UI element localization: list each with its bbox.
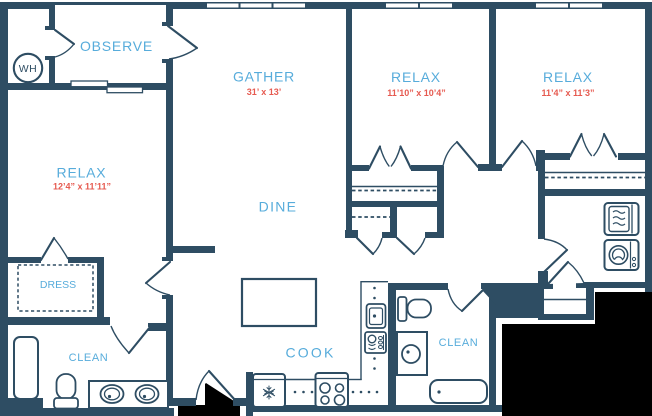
svg-text:CLEAN: CLEAN bbox=[69, 352, 109, 364]
svg-text:DINE: DINE bbox=[259, 199, 298, 215]
svg-text:RELAX: RELAX bbox=[391, 69, 441, 85]
svg-text:RELAX: RELAX bbox=[543, 69, 593, 85]
svg-text:GATHER: GATHER bbox=[233, 69, 295, 85]
svg-text:OBSERVE: OBSERVE bbox=[80, 38, 153, 54]
svg-text:12’4” x 11’11”: 12’4” x 11’11” bbox=[53, 182, 111, 192]
svg-text:CLEAN: CLEAN bbox=[439, 337, 479, 349]
svg-text:11’10” x 10’4”: 11’10” x 10’4” bbox=[387, 88, 446, 98]
svg-text:WH: WH bbox=[19, 63, 38, 75]
svg-text:RELAX: RELAX bbox=[57, 165, 107, 181]
svg-text:11’4” x 11’3”: 11’4” x 11’3” bbox=[541, 88, 594, 98]
svg-text:31’ x 13’: 31’ x 13’ bbox=[247, 87, 282, 97]
svg-text:COOK: COOK bbox=[285, 345, 335, 361]
svg-text:DRESS: DRESS bbox=[40, 279, 76, 291]
